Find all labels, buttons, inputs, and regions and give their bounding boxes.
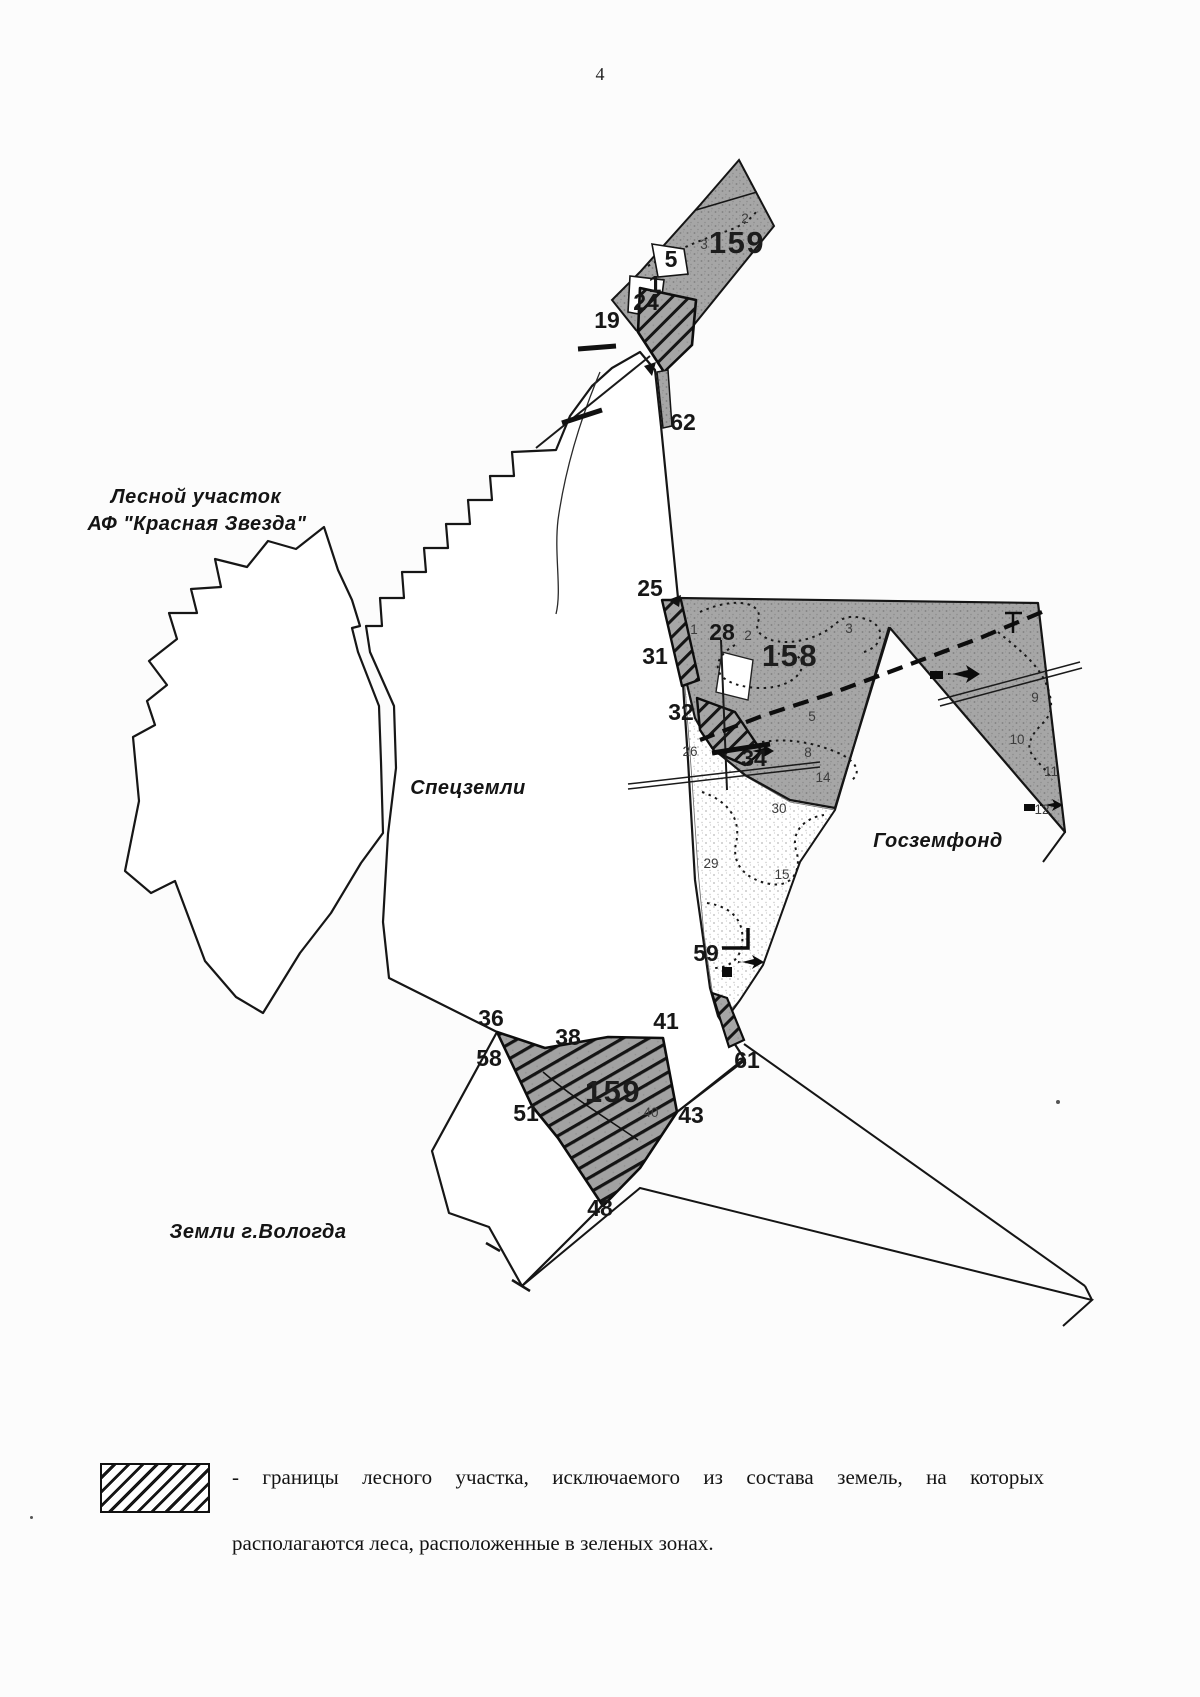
point-label: 36 (478, 1005, 504, 1031)
parcel-label: 14 (815, 770, 831, 785)
parcel-label: 8 (804, 745, 812, 760)
parcel-label: 40 (643, 1105, 658, 1120)
quarter-label: 159 (585, 1074, 641, 1109)
parcel-label: 10 (1009, 732, 1024, 747)
point-label: 62 (670, 409, 696, 435)
area-label: Земли г.Вологда (170, 1221, 347, 1243)
quarter-158-tail-line (1043, 832, 1065, 862)
parcel-label: 30 (771, 801, 786, 816)
parcel-label: 11 (1044, 764, 1058, 779)
quarter-label: 159 (709, 225, 765, 260)
point-label: 5 (665, 246, 678, 272)
parcel-label: 2 (741, 211, 749, 226)
point-label: 28 (709, 619, 735, 645)
road-tick (578, 346, 616, 349)
quarter-label: 158 (762, 638, 818, 673)
parcel-label: 3 (845, 621, 853, 636)
point-label: 32 (668, 699, 694, 725)
long-line-upper (744, 1044, 1085, 1286)
area-label: АФ "Красная Звезда" (86, 513, 306, 535)
scan-speck (30, 1516, 33, 1519)
point-label: 25 (637, 575, 663, 601)
point-label: 38 (555, 1024, 581, 1050)
map-drawing: Лесной участокАФ "Красная Звезда"Спецзем… (0, 0, 1200, 1697)
parcel-label: 9 (1031, 690, 1039, 705)
point-label: 61 (734, 1047, 760, 1073)
point-label: 58 (476, 1045, 502, 1071)
scan-speck (1056, 1100, 1060, 1104)
point-label: 48 (587, 1195, 613, 1221)
point-label: 43 (678, 1102, 704, 1128)
parcel-label: 29 (703, 856, 718, 871)
area-label: Госземфонд (873, 830, 1003, 852)
parcel-label: 3 (700, 237, 708, 252)
area-label: Спецземли (410, 777, 525, 799)
parcel-label: 1 (690, 622, 698, 637)
point-label: 31 (642, 643, 668, 669)
point-label: 51 (513, 1100, 539, 1126)
point-label: 1 (649, 271, 662, 297)
point-label: 59 (693, 940, 719, 966)
parcel-label: 15 (774, 867, 789, 882)
area-label: Лесной участок (109, 486, 282, 508)
point-label: 19 (594, 307, 620, 333)
parcel-label: 12 (1034, 802, 1049, 817)
point-label: 41 (653, 1008, 679, 1034)
af-krasnaya-zvezda-boundary (125, 527, 383, 1013)
parcel-label: 26 (682, 744, 697, 759)
parcel-label: 5 (808, 709, 816, 724)
parcel-label: 2 (744, 628, 752, 643)
point-label: 34 (741, 745, 767, 771)
scanned-map-page: 4 (0, 0, 1200, 1697)
speczemli-boundary (366, 352, 745, 1286)
